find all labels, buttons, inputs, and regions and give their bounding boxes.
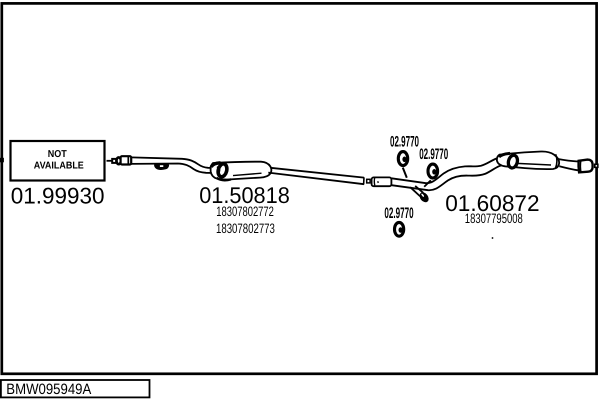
svg-text:AVAILABLE: AVAILABLE [34,160,84,171]
svg-text:02.9770: 02.9770 [419,146,448,163]
svg-text:02.9770: 02.9770 [384,205,413,222]
svg-text:02.9770: 02.9770 [390,134,419,151]
svg-text:NOT: NOT [48,149,67,160]
svg-text:18307795008: 18307795008 [465,211,523,226]
svg-text:BMW095949A: BMW095949A [6,381,91,398]
svg-text:18307802772: 18307802772 [216,204,274,219]
svg-text:01.99930: 01.99930 [11,182,105,208]
svg-text:18307802773: 18307802773 [216,221,275,236]
